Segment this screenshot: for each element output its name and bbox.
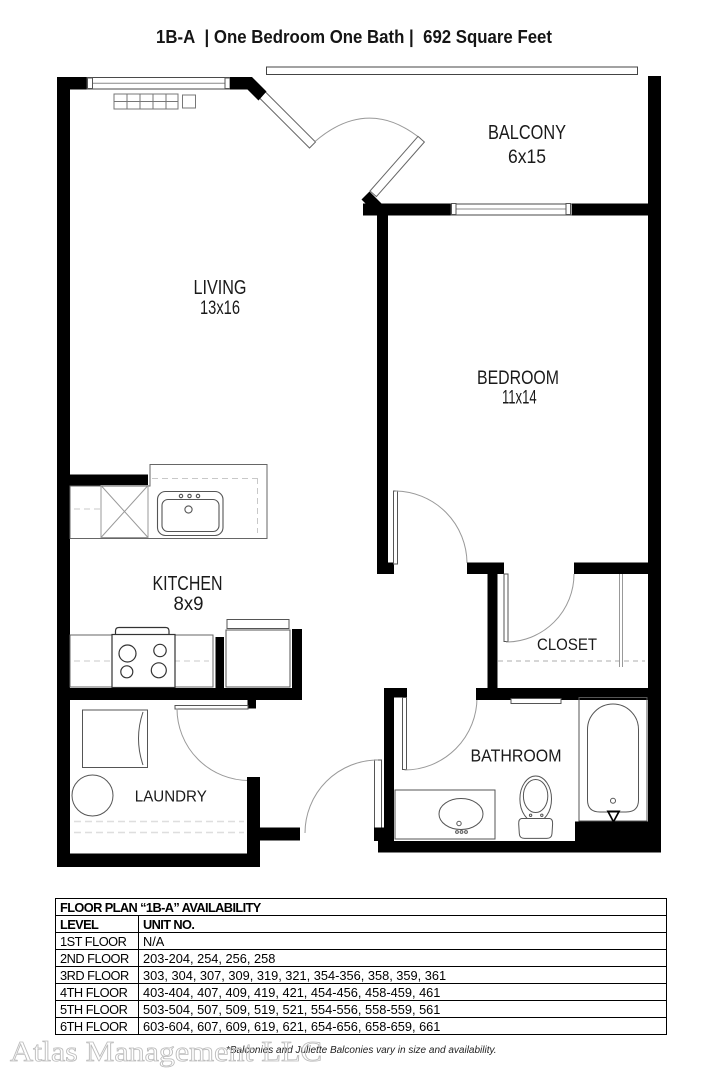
svg-text:LIVING: LIVING: [194, 276, 247, 299]
svg-text:KITCHEN: KITCHEN: [153, 572, 223, 595]
svg-text:LAUNDRY: LAUNDRY: [135, 788, 207, 805]
svg-text:CLOSET: CLOSET: [537, 636, 597, 654]
svg-text:11x14: 11x14: [502, 388, 537, 409]
svg-text:BALCONY: BALCONY: [488, 121, 566, 144]
svg-text:13x16: 13x16: [200, 298, 240, 319]
svg-text:6x15: 6x15: [508, 147, 546, 168]
svg-text:BATHROOM: BATHROOM: [471, 745, 562, 765]
svg-text:BEDROOM: BEDROOM: [477, 368, 559, 389]
svg-text:Atlas Management LLC: Atlas Management LLC: [10, 1036, 322, 1068]
svg-text:8x9: 8x9: [174, 594, 204, 615]
